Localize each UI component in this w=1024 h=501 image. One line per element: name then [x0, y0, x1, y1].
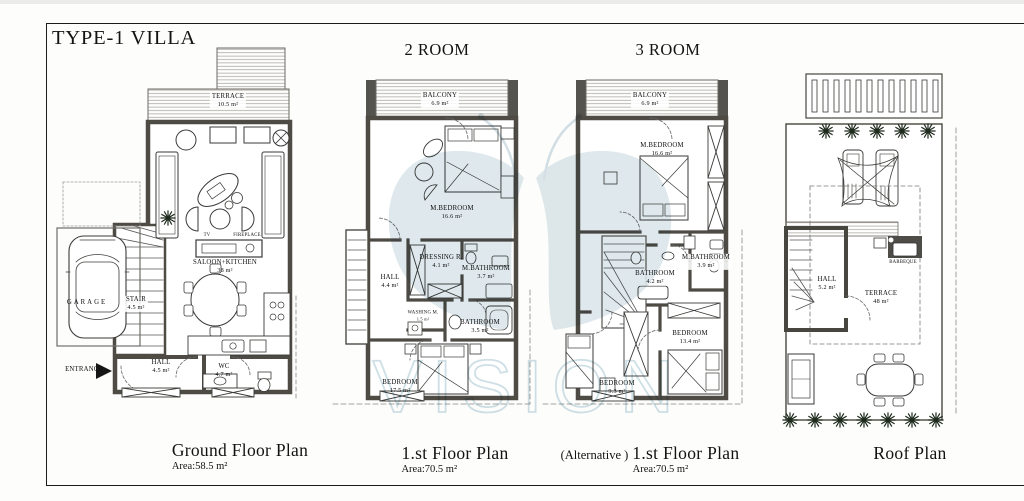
first-floor-alternative-drawing: [543, 80, 742, 404]
room-label-hall: HALL4.5 m²: [152, 359, 171, 375]
room-label-washing-m: WASHING M.1.5 m²: [406, 310, 441, 321]
room-label-m-bedroom: M.BEDROOM16.6 m²: [640, 142, 684, 158]
caption-title: Ground Floor Plan: [172, 440, 308, 461]
room-label-bedroom: BEDROOM9.3 m²: [599, 380, 634, 396]
room-label-m-bedroom: M.BEDROOM16.6 m²: [430, 205, 474, 221]
room-label-balcony: BALCONY6.9 m²: [421, 92, 459, 108]
room-label-tv: TV: [204, 233, 211, 239]
column-header-3-room: 3 ROOM: [636, 40, 701, 60]
room-label-hall: HALL4.4 m²: [381, 274, 400, 290]
room-label-terrace: TERRACE48 m²: [865, 290, 897, 306]
roof-plan-drawing: [783, 74, 956, 427]
room-label-entrance: ENTRANCE: [65, 366, 103, 374]
ground-floor-drawing: [57, 48, 296, 400]
room-label-m-bathroom: M.BATHROOM3.9 m²: [680, 254, 732, 270]
drawing-sheet: TYPE-1 VILLA 2 ROOM 3 ROOM: [0, 0, 1024, 501]
room-label-balcony: BALCONY6.9 m²: [631, 92, 669, 108]
caption-area: Area:70.5 m²: [633, 464, 740, 475]
room-label-bedroom: BEDROOM13.4 m²: [672, 330, 707, 346]
room-label-bathroom: BATHROOM3.5 m²: [460, 319, 500, 335]
room-label-saloon-kitchen: SALOON+KITCHEN38 m²: [193, 259, 257, 275]
room-label-terrace: TERRACE10.5 m²: [210, 93, 246, 109]
caption-title: Roof Plan: [873, 443, 946, 464]
caption-title: 1.st Floor Plan: [401, 443, 508, 464]
room-label-garage: GARAGE: [67, 299, 107, 307]
floor-plan-linework: [0, 0, 1024, 501]
room-label-bathroom: BATHROOM4.2 m²: [633, 270, 677, 286]
room-label-dressing-r: DRESSING R.4.1 m²: [419, 254, 462, 270]
room-label-barbeque: BARBEQUE: [887, 260, 918, 266]
caption-area: Area:58.5 m²: [172, 461, 308, 472]
room-label-hall: HALL5.2 m²: [818, 276, 837, 292]
column-header-2-room: 2 ROOM: [405, 40, 470, 60]
caption-roof: Roof Plan: [873, 443, 946, 464]
first-floor-drawing: [333, 80, 530, 404]
caption-first-floor-alternative: (Alternative ) 1.st Floor Plan Area:70.5…: [561, 443, 740, 475]
room-label-m-bathroom: M.BATHROOM3.7 m²: [462, 265, 510, 281]
caption-title: 1.st Floor Plan: [632, 443, 739, 463]
caption-first-floor: 1.st Floor Plan Area:70.5 m²: [401, 443, 508, 475]
caption-ground-floor: Ground Floor Plan Area:58.5 m²: [172, 440, 308, 472]
caption-area: Area:70.5 m²: [401, 464, 508, 475]
page-title: TYPE-1 VILLA: [52, 27, 196, 50]
room-label-bedroom: BEDROOM17.5 m²: [382, 379, 417, 395]
caption-prefix: (Alternative ): [561, 448, 629, 462]
room-label-fireplace: FIREPLACE: [233, 233, 260, 239]
room-label-wc: WC4.7 m²: [215, 363, 232, 379]
room-label-stair: STAIR4.5 m²: [124, 296, 148, 312]
